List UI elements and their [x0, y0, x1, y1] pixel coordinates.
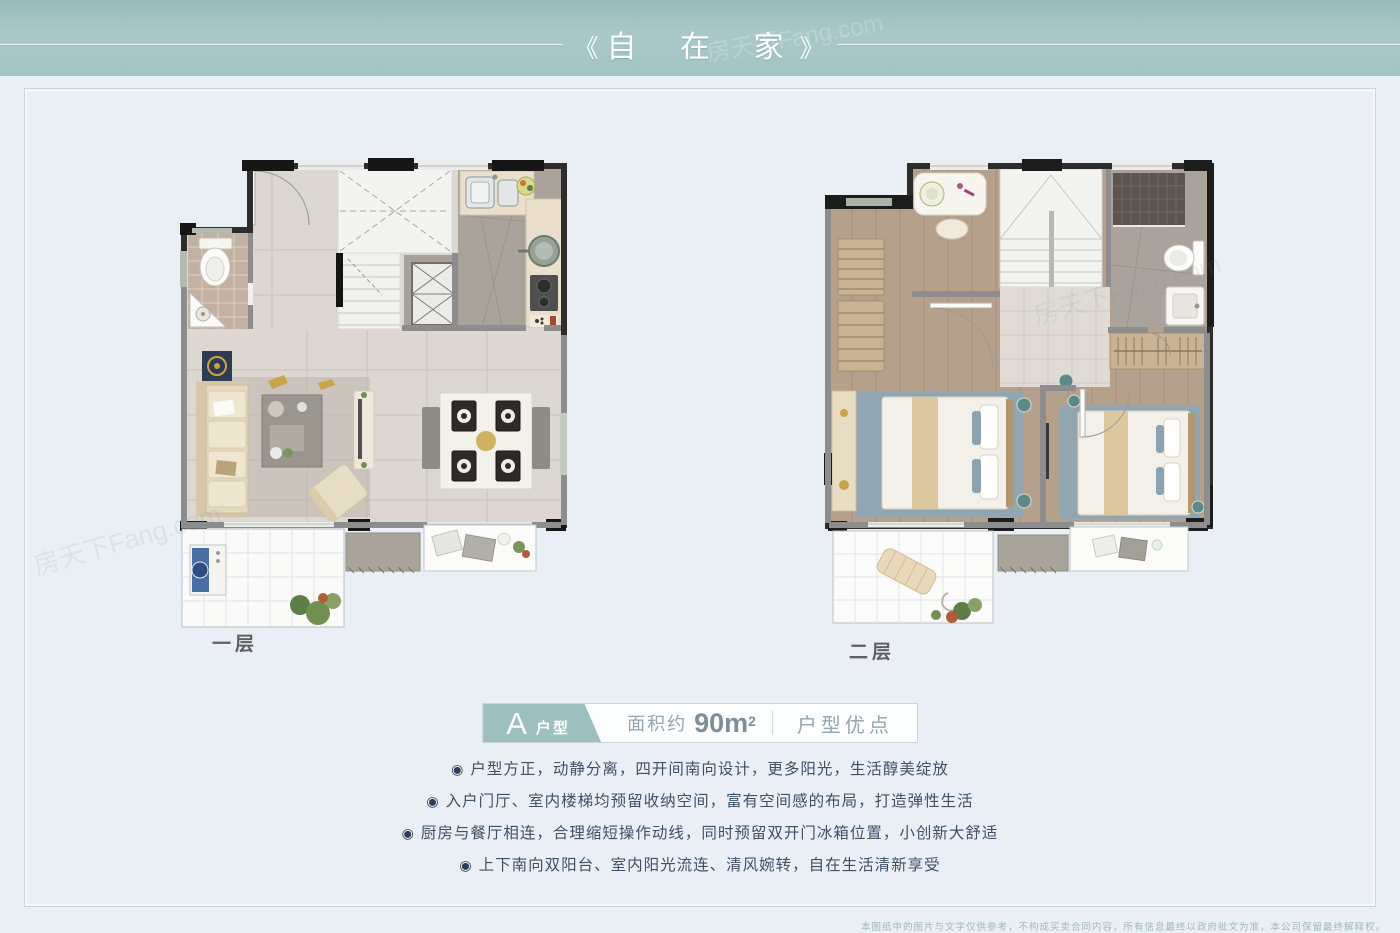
- area-superscript: 2: [748, 713, 756, 729]
- bathroom-wall: [248, 233, 253, 329]
- banner-row: 《自 在 家》: [0, 22, 1400, 66]
- washing-machine-icon: [190, 545, 226, 595]
- entry-mat: [202, 351, 232, 381]
- bathroom-door: [248, 283, 253, 305]
- bullet-icon: ◉: [426, 793, 439, 809]
- wardrobe: [838, 239, 884, 371]
- balcony-chair: [462, 535, 495, 562]
- floor1-bathroom: [188, 233, 253, 329]
- dining-chair: [452, 451, 476, 481]
- bullet-icon: ◉: [451, 761, 464, 777]
- lamp-icon: [1017, 494, 1031, 508]
- title-left-bracket: 《: [573, 34, 600, 63]
- bullet-icon: ◉: [459, 857, 472, 873]
- first-floor-plan: [172, 155, 592, 638]
- second-floor-label: 二层: [849, 637, 895, 664]
- first-floor-plan-svg: [172, 155, 592, 633]
- advantages-label: 户型优点: [773, 704, 917, 742]
- floor1-right-balcony: [424, 525, 536, 571]
- second-floor-plan-svg: [812, 155, 1242, 633]
- floor2-ac-slab: [998, 535, 1068, 573]
- sofa: [196, 381, 248, 517]
- banner-line-left: [0, 44, 563, 45]
- bedroom-2: [1045, 395, 1204, 519]
- floor2-bathroom: [1111, 169, 1205, 327]
- area-prefix: 面积约: [627, 710, 687, 736]
- unit-area: 面积约 90m 2: [601, 704, 772, 742]
- unit-letter: A: [506, 708, 527, 739]
- first-floor-label: 一层: [212, 629, 258, 656]
- table-centerpiece: [476, 431, 496, 451]
- banner-line-right: [837, 44, 1400, 45]
- dining-chair: [452, 401, 476, 431]
- title-text: 自 在 家: [606, 30, 793, 65]
- fabric-chair: [532, 407, 550, 469]
- feature-text: 入户门厅、室内楼梯均预留收纳空间，富有空间感的布局，打造弹性生活: [446, 793, 974, 810]
- unit-info-bar: A 户型 面积约 90m 2 户型优点: [482, 703, 918, 743]
- bed: [1078, 411, 1195, 515]
- feature-text: 上下南向双阳台、室内阳光流连、清风婉转，自在生活清新享受: [479, 857, 941, 874]
- dining-chair: [496, 451, 520, 481]
- bathroom-sink-icon: [1166, 287, 1204, 325]
- wardrobe: [1110, 333, 1206, 369]
- vanity-stool: [936, 219, 968, 239]
- toilet-icon: [199, 238, 232, 286]
- balcony-chair: [1092, 535, 1117, 557]
- feature-item: ◉上下南向双阳台、室内阳光流连、清风婉转，自在生活清新享受: [0, 853, 1400, 875]
- floor2-corridor: [1000, 287, 1110, 388]
- bullet-icon: ◉: [402, 825, 415, 841]
- second-floor-plan: [812, 155, 1242, 638]
- title-right-bracket: 》: [800, 34, 827, 63]
- bed: [882, 397, 1013, 509]
- feature-list: ◉户型方正，动静分离，四开间南向设计，更多阳光，生活醇美绽放 ◉入户门厅、室内楼…: [0, 757, 1400, 885]
- cooktop-icon: [530, 275, 558, 311]
- page-title: 《自 在 家》: [563, 22, 836, 66]
- dining-table: [422, 393, 550, 489]
- kitchen: [458, 169, 562, 327]
- lamp-icon: [1068, 395, 1080, 407]
- balcony-chair: [1119, 537, 1148, 560]
- unit-type-label: 户型: [536, 717, 570, 738]
- feature-text: 厨房与餐厅相连，合理缩短操作动线，同时预留双开门冰箱位置，小创新大舒适: [421, 825, 999, 842]
- kitchen-sink-icon: [466, 175, 518, 209]
- floor1-ac-slab: [346, 533, 420, 573]
- floor2-left-balcony: [833, 531, 993, 623]
- floor1-left-balcony: [182, 529, 344, 627]
- floor2-right-balcony: [1070, 527, 1188, 571]
- floor2-stairs: [1000, 169, 1102, 287]
- lamp-icon: [1192, 501, 1204, 513]
- fabric-chair: [422, 407, 440, 469]
- area-value: 90m: [694, 708, 748, 739]
- bedroom-1: [832, 391, 1031, 517]
- feature-item: ◉户型方正，动静分离，四开间南向设计，更多阳光，生活醇美绽放: [0, 757, 1400, 779]
- shower-icon: [1113, 173, 1185, 226]
- title-banner: 《自 在 家》 房天下Fang.com: [0, 0, 1400, 76]
- floorplan-poster: 《自 在 家》 房天下Fang.com: [0, 0, 1400, 933]
- lamp-icon: [1017, 398, 1031, 412]
- fruit-basket-icon: [517, 177, 535, 195]
- feature-item: ◉入户门厅、室内楼梯均预留收纳空间，富有空间感的布局，打造弹性生活: [0, 789, 1400, 811]
- feature-text: 户型方正，动静分离，四开间南向设计，更多阳光，生活醇美绽放: [470, 761, 949, 778]
- feature-item: ◉厨房与餐厅相连，合理缩短操作动线，同时预留双开门冰箱位置，小创新大舒适: [0, 821, 1400, 843]
- unit-type-badge: A 户型: [483, 704, 601, 742]
- tv-console: [354, 391, 374, 469]
- coffee-table: [262, 395, 322, 467]
- dining-chair: [496, 401, 520, 431]
- disclaimer-text: 本图纸中的图片与文字仅供参考，不构成买卖合同内容，所有信息最终以政府批文为准，本…: [861, 919, 1386, 933]
